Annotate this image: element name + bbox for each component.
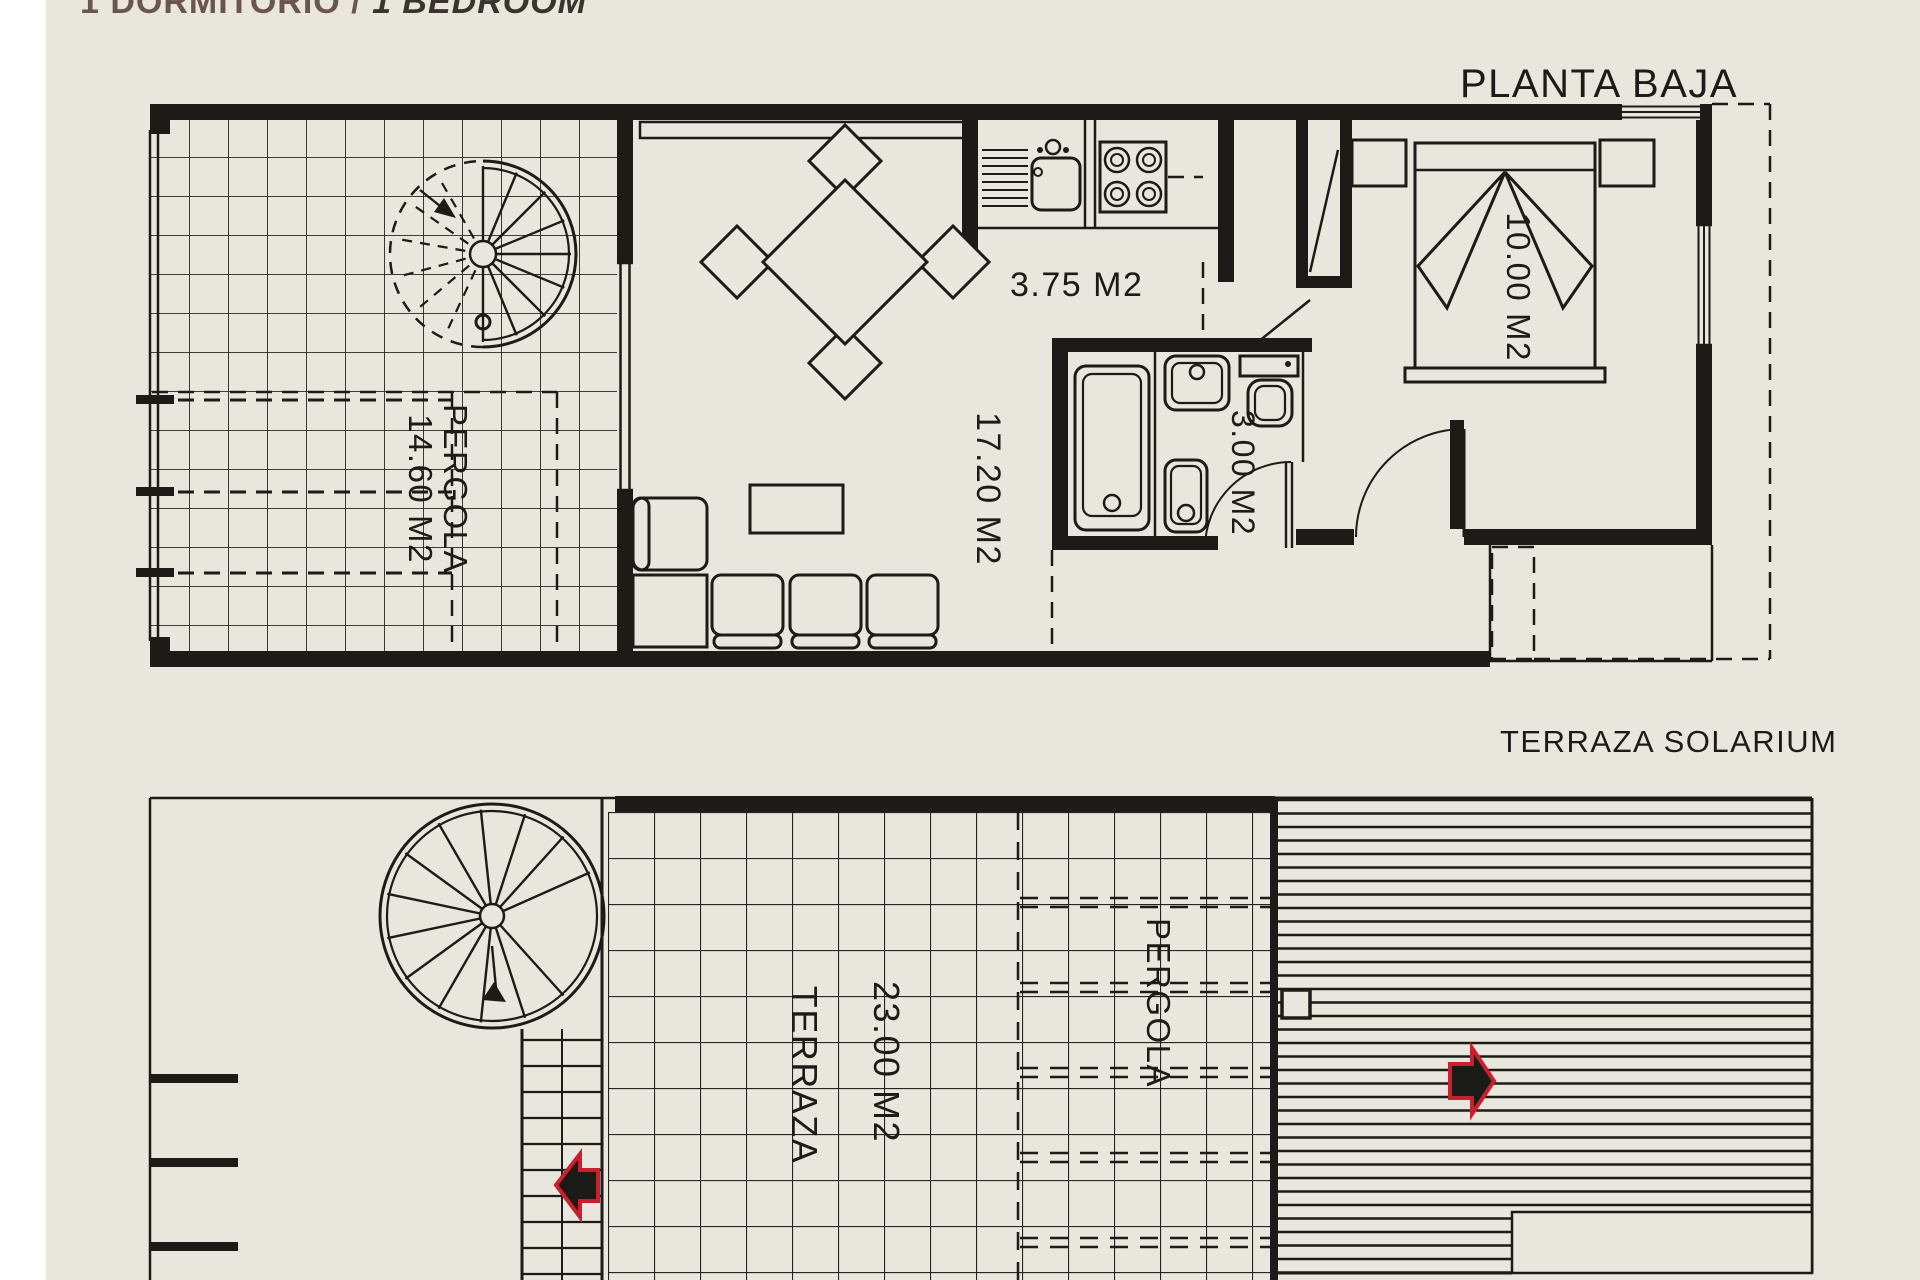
terrace-area-label: 23.00 M2: [866, 981, 907, 1143]
ground-floor-title: PLANTA BAJA: [1460, 62, 1738, 106]
terraza-solarium-plan: TERRAZA SOLARIUM TERRAZA 23.00 M2 PERGOL…: [150, 724, 1838, 1280]
stove: [1100, 142, 1166, 212]
pergola-tile-grid: [150, 118, 617, 653]
nightstand: [1600, 140, 1654, 186]
sofa-corner-seat: [633, 575, 707, 647]
spiral-staircase-lower: [380, 804, 604, 1028]
washbasin: [1165, 356, 1229, 410]
terrace-name-label: TERRAZA: [784, 986, 825, 1165]
sofa: [712, 575, 938, 648]
floorplan-canvas: PLANTA BAJA 3.75 M2 17.20 M2 3.00 M2 10.…: [0, 0, 1920, 1280]
bathtub: [1075, 366, 1149, 530]
kitchen-sink: [982, 140, 1080, 210]
bidet: [1165, 460, 1207, 532]
kitchen: [982, 140, 1166, 212]
bedroom-area-label: 10.00 M2: [1500, 212, 1537, 362]
roof-hatch: [1282, 990, 1310, 1018]
kitchen-area-label: 3.75 M2: [1010, 266, 1143, 304]
planta-baja-plan: PLANTA BAJA 3.75 M2 17.20 M2 3.00 M2 10.…: [136, 62, 1770, 667]
pergola-area-label: 14.60 M2: [402, 414, 439, 564]
dining-table-set: [701, 125, 989, 399]
dining-table: [763, 180, 927, 344]
bathroom-area-label: 3.00 M2: [1225, 410, 1261, 536]
roof-terrace-title: TERRAZA SOLARIUM: [1500, 724, 1838, 759]
coffee-table: [750, 485, 843, 533]
solarium-decking-lower: [1275, 1212, 1512, 1273]
sofa-set: [633, 485, 938, 648]
bed-pillow: [1418, 172, 1505, 308]
bathroom: [1075, 356, 1298, 548]
nightstand: [1352, 140, 1406, 186]
living-area-label: 17.20 M2: [969, 412, 1007, 566]
armchair: [633, 498, 707, 570]
terrace-pergola-label: PERGOLA: [1140, 918, 1177, 1088]
pergola-name-label: PERGOLA: [437, 404, 474, 574]
solarium-decking: [1275, 798, 1812, 1212]
bedroom-door: [1356, 429, 1464, 537]
